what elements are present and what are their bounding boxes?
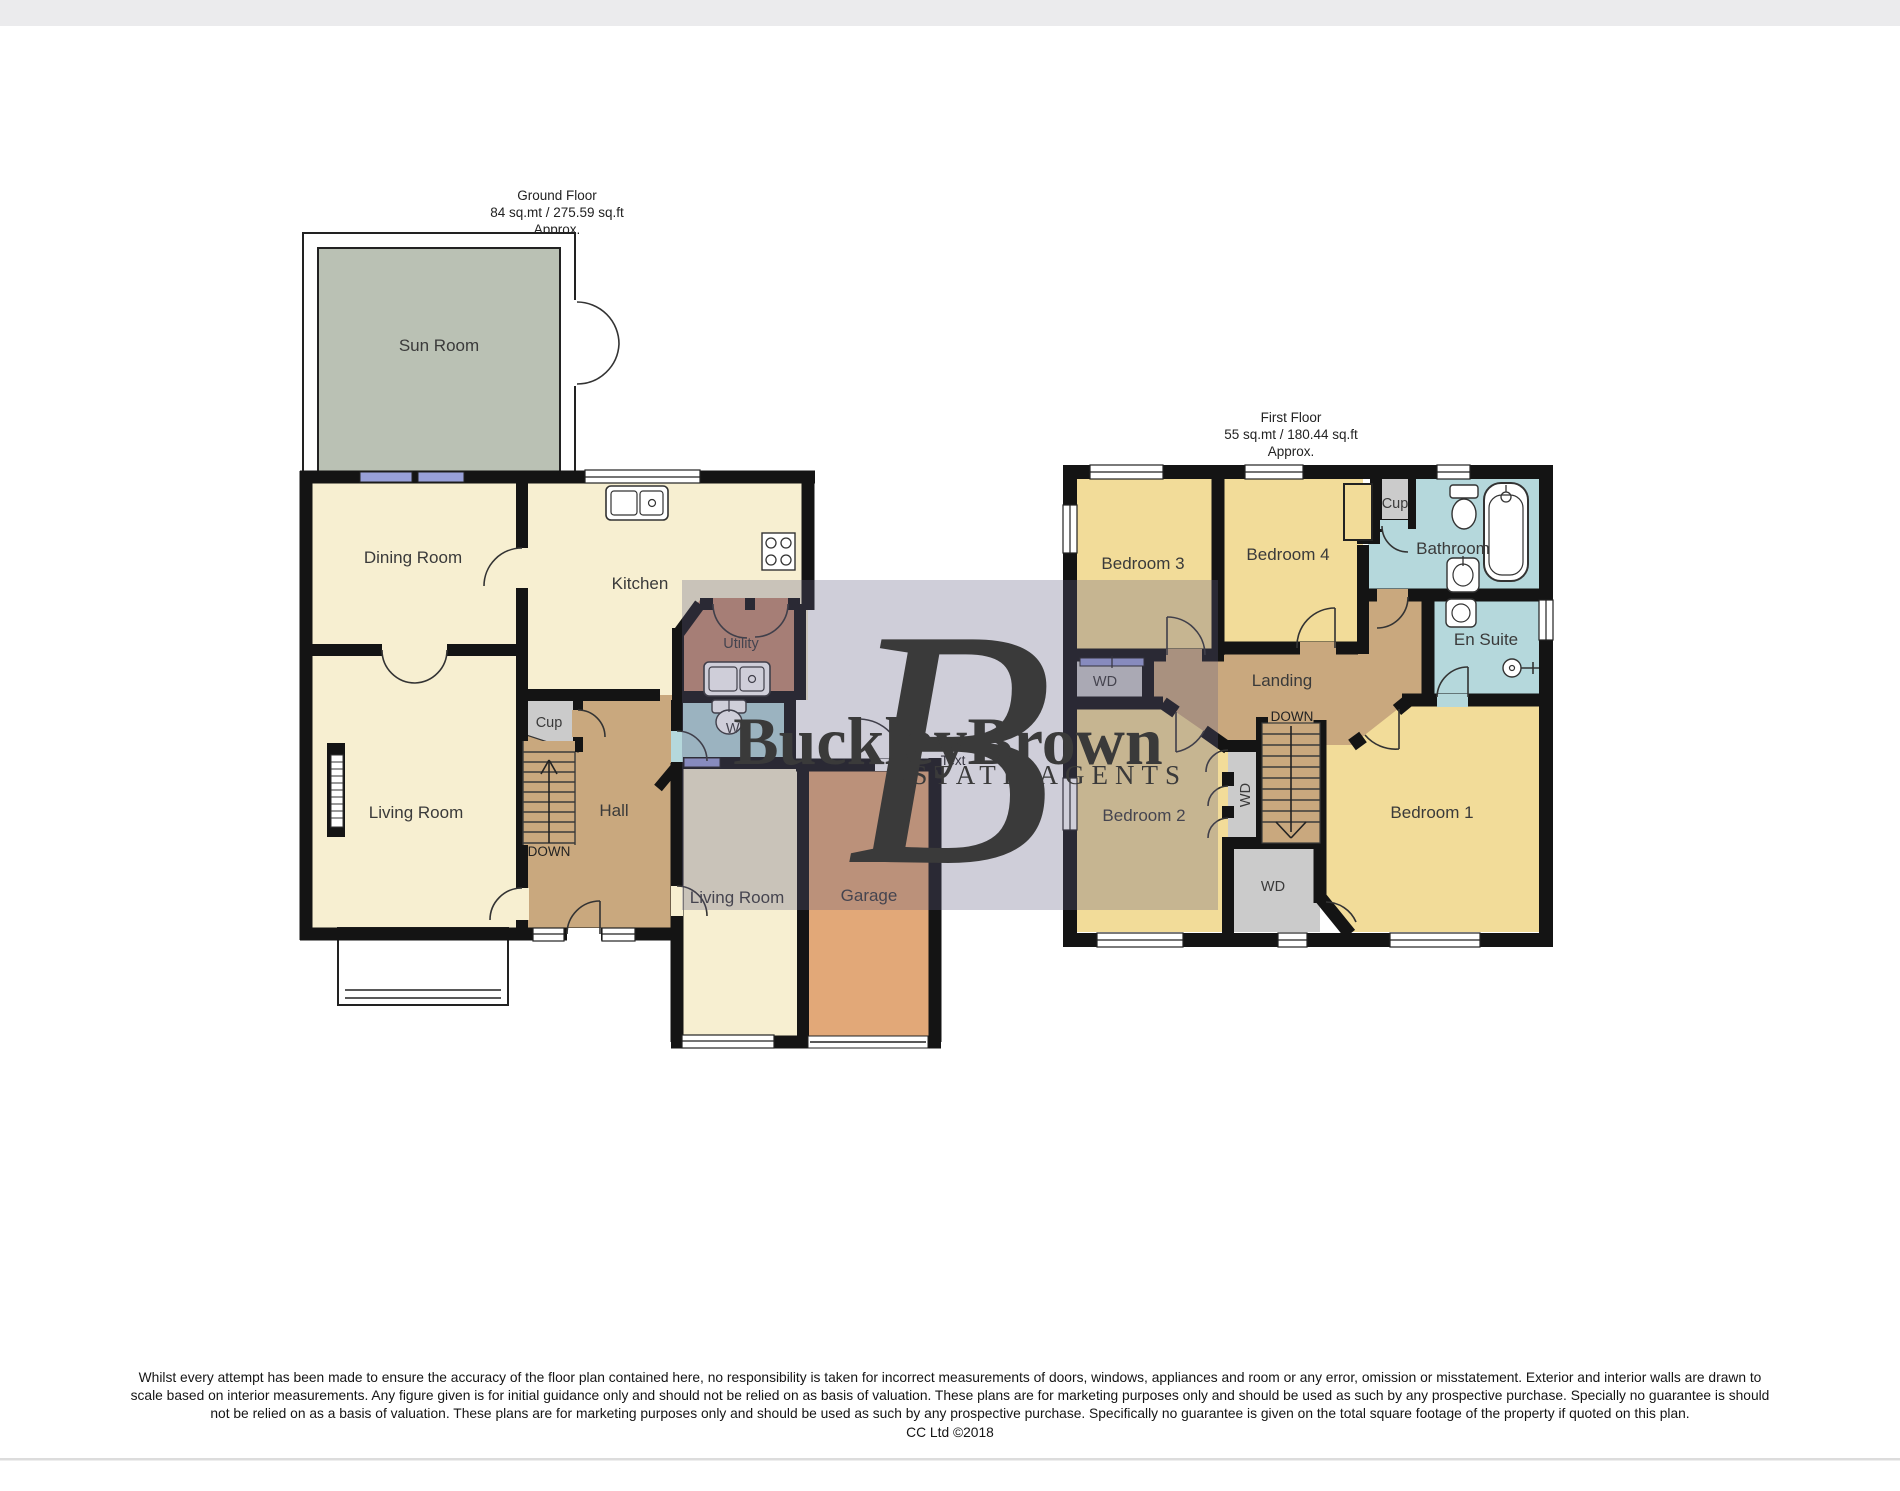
ground-floor-area: 84 sq.mt / 275.59 sq.ft	[490, 205, 624, 220]
room-label-bedroom-4: Bedroom 4	[1246, 545, 1329, 564]
room-label-landing: Landing	[1252, 671, 1313, 690]
watermark-tagline: ESTATE AGENTS	[889, 760, 1187, 790]
room-label-cupboard-ff: Cup	[1382, 496, 1409, 512]
sun-room-floor	[318, 248, 560, 472]
room-label-bedroom-1: Bedroom 1	[1390, 803, 1473, 822]
ground-floor-stairs	[523, 741, 575, 845]
kitchen-sink	[606, 486, 668, 520]
en-suite-sink	[1446, 599, 1476, 627]
page-top-strip	[0, 0, 1900, 26]
room-label-hall: Hall	[599, 801, 628, 820]
first-floor-stairs	[1262, 723, 1320, 843]
disclaimer-credit: CC Ltd ©2018	[0, 1424, 1900, 1442]
room-label-bathroom: Bathroom	[1416, 539, 1490, 558]
stairs-down-label-ff: DOWN	[1271, 709, 1314, 724]
bathroom-sink	[1447, 556, 1479, 592]
room-label-wardrobe-strip: WD	[1238, 783, 1254, 807]
floorplan-image: Ground Floor 84 sq.mt / 275.59 sq.ft App…	[0, 0, 1900, 1491]
room-label-cupboard: Cup	[536, 715, 563, 731]
room-label-en-suite: En Suite	[1454, 630, 1518, 649]
room-label-wardrobe-room: WD	[1261, 879, 1285, 895]
sun-room-door-gap	[563, 300, 577, 386]
room-label-living-room: Living Room	[369, 803, 464, 822]
room-label-kitchen: Kitchen	[612, 574, 669, 593]
room-label-sun-room: Sun Room	[399, 336, 479, 355]
disclaimer-line-1: Whilst every attempt has been made to en…	[0, 1369, 1900, 1387]
disclaimer-line-3: not be relied on as a basis of valuation…	[0, 1405, 1900, 1423]
page-bottom-rule	[0, 1458, 1900, 1461]
stairs-down-label-gf: DOWN	[528, 844, 571, 859]
first-floor-area: 55 sq.mt / 180.44 sq.ft	[1224, 427, 1358, 442]
bathroom-toilet	[1450, 485, 1478, 529]
sun-room-door-arc	[577, 302, 619, 344]
hob	[762, 533, 795, 570]
first-floor-title: First Floor	[1261, 410, 1322, 425]
ground-floor-title: Ground Floor	[517, 188, 597, 203]
floorplan-page: Ground Floor 84 sq.mt / 275.59 sq.ft App…	[0, 0, 1900, 1491]
watermark: B BuckleyBrown ESTATE AGENTS	[682, 559, 1218, 936]
bedroom-4-notch	[1344, 484, 1372, 540]
bath-tub	[1484, 483, 1528, 581]
first-floor-approx: Approx.	[1268, 444, 1315, 459]
room-label-dining-room: Dining Room	[364, 548, 462, 567]
fireplace-hatch	[331, 755, 343, 827]
disclaimer: Whilst every attempt has been made to en…	[0, 1369, 1900, 1442]
disclaimer-line-2: scale based on interior measurements. An…	[0, 1387, 1900, 1405]
room-label-bedroom-3: Bedroom 3	[1101, 554, 1184, 573]
sun-room-door-arc	[577, 344, 619, 384]
